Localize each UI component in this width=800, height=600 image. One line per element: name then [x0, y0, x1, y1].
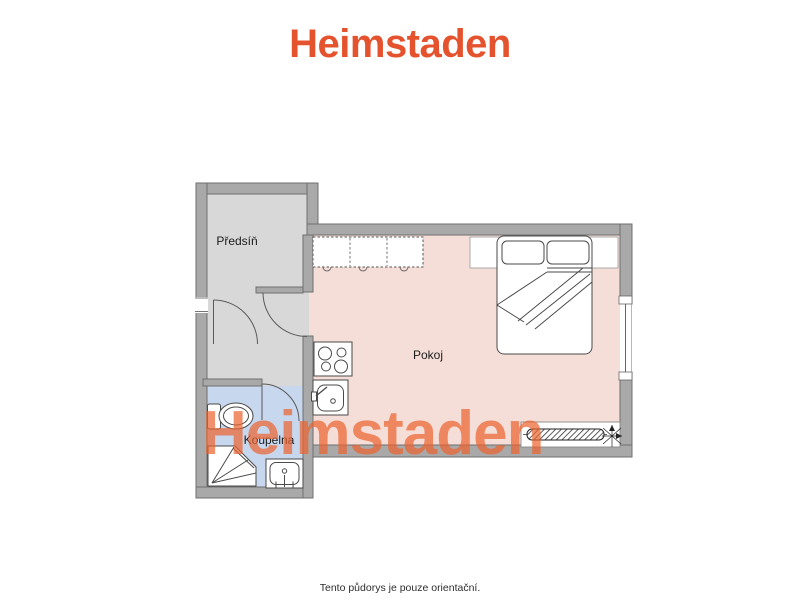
wall-left-upper — [196, 183, 207, 298]
wall-right-lower — [620, 372, 632, 457]
floorplan-page: Heimstaden — [0, 0, 800, 600]
floor-plan: Předsíň Pokoj Koupelna — [0, 0, 800, 600]
kitchen-counter — [313, 237, 423, 271]
brand-watermark: Heimstaden — [202, 403, 543, 465]
wall-interior-koupelna — [203, 379, 262, 386]
entry-door-opening — [195, 297, 208, 313]
wall-top-pokoj — [307, 224, 632, 235]
stove — [314, 342, 352, 376]
room-label-predsin: Předsíň — [216, 234, 257, 248]
wall-interior-predsin — [256, 287, 303, 293]
wall-top-predsin — [196, 183, 318, 194]
wall-right-upper — [620, 224, 632, 304]
window — [619, 296, 632, 380]
room-label-pokoj: Pokoj — [413, 348, 443, 362]
floorplan-disclaimer: Tento půdorys je pouze orientační. — [0, 582, 800, 594]
wall-bottom-koupelna — [196, 487, 309, 498]
wall-mid-upper — [303, 235, 313, 292]
bed — [497, 236, 592, 354]
